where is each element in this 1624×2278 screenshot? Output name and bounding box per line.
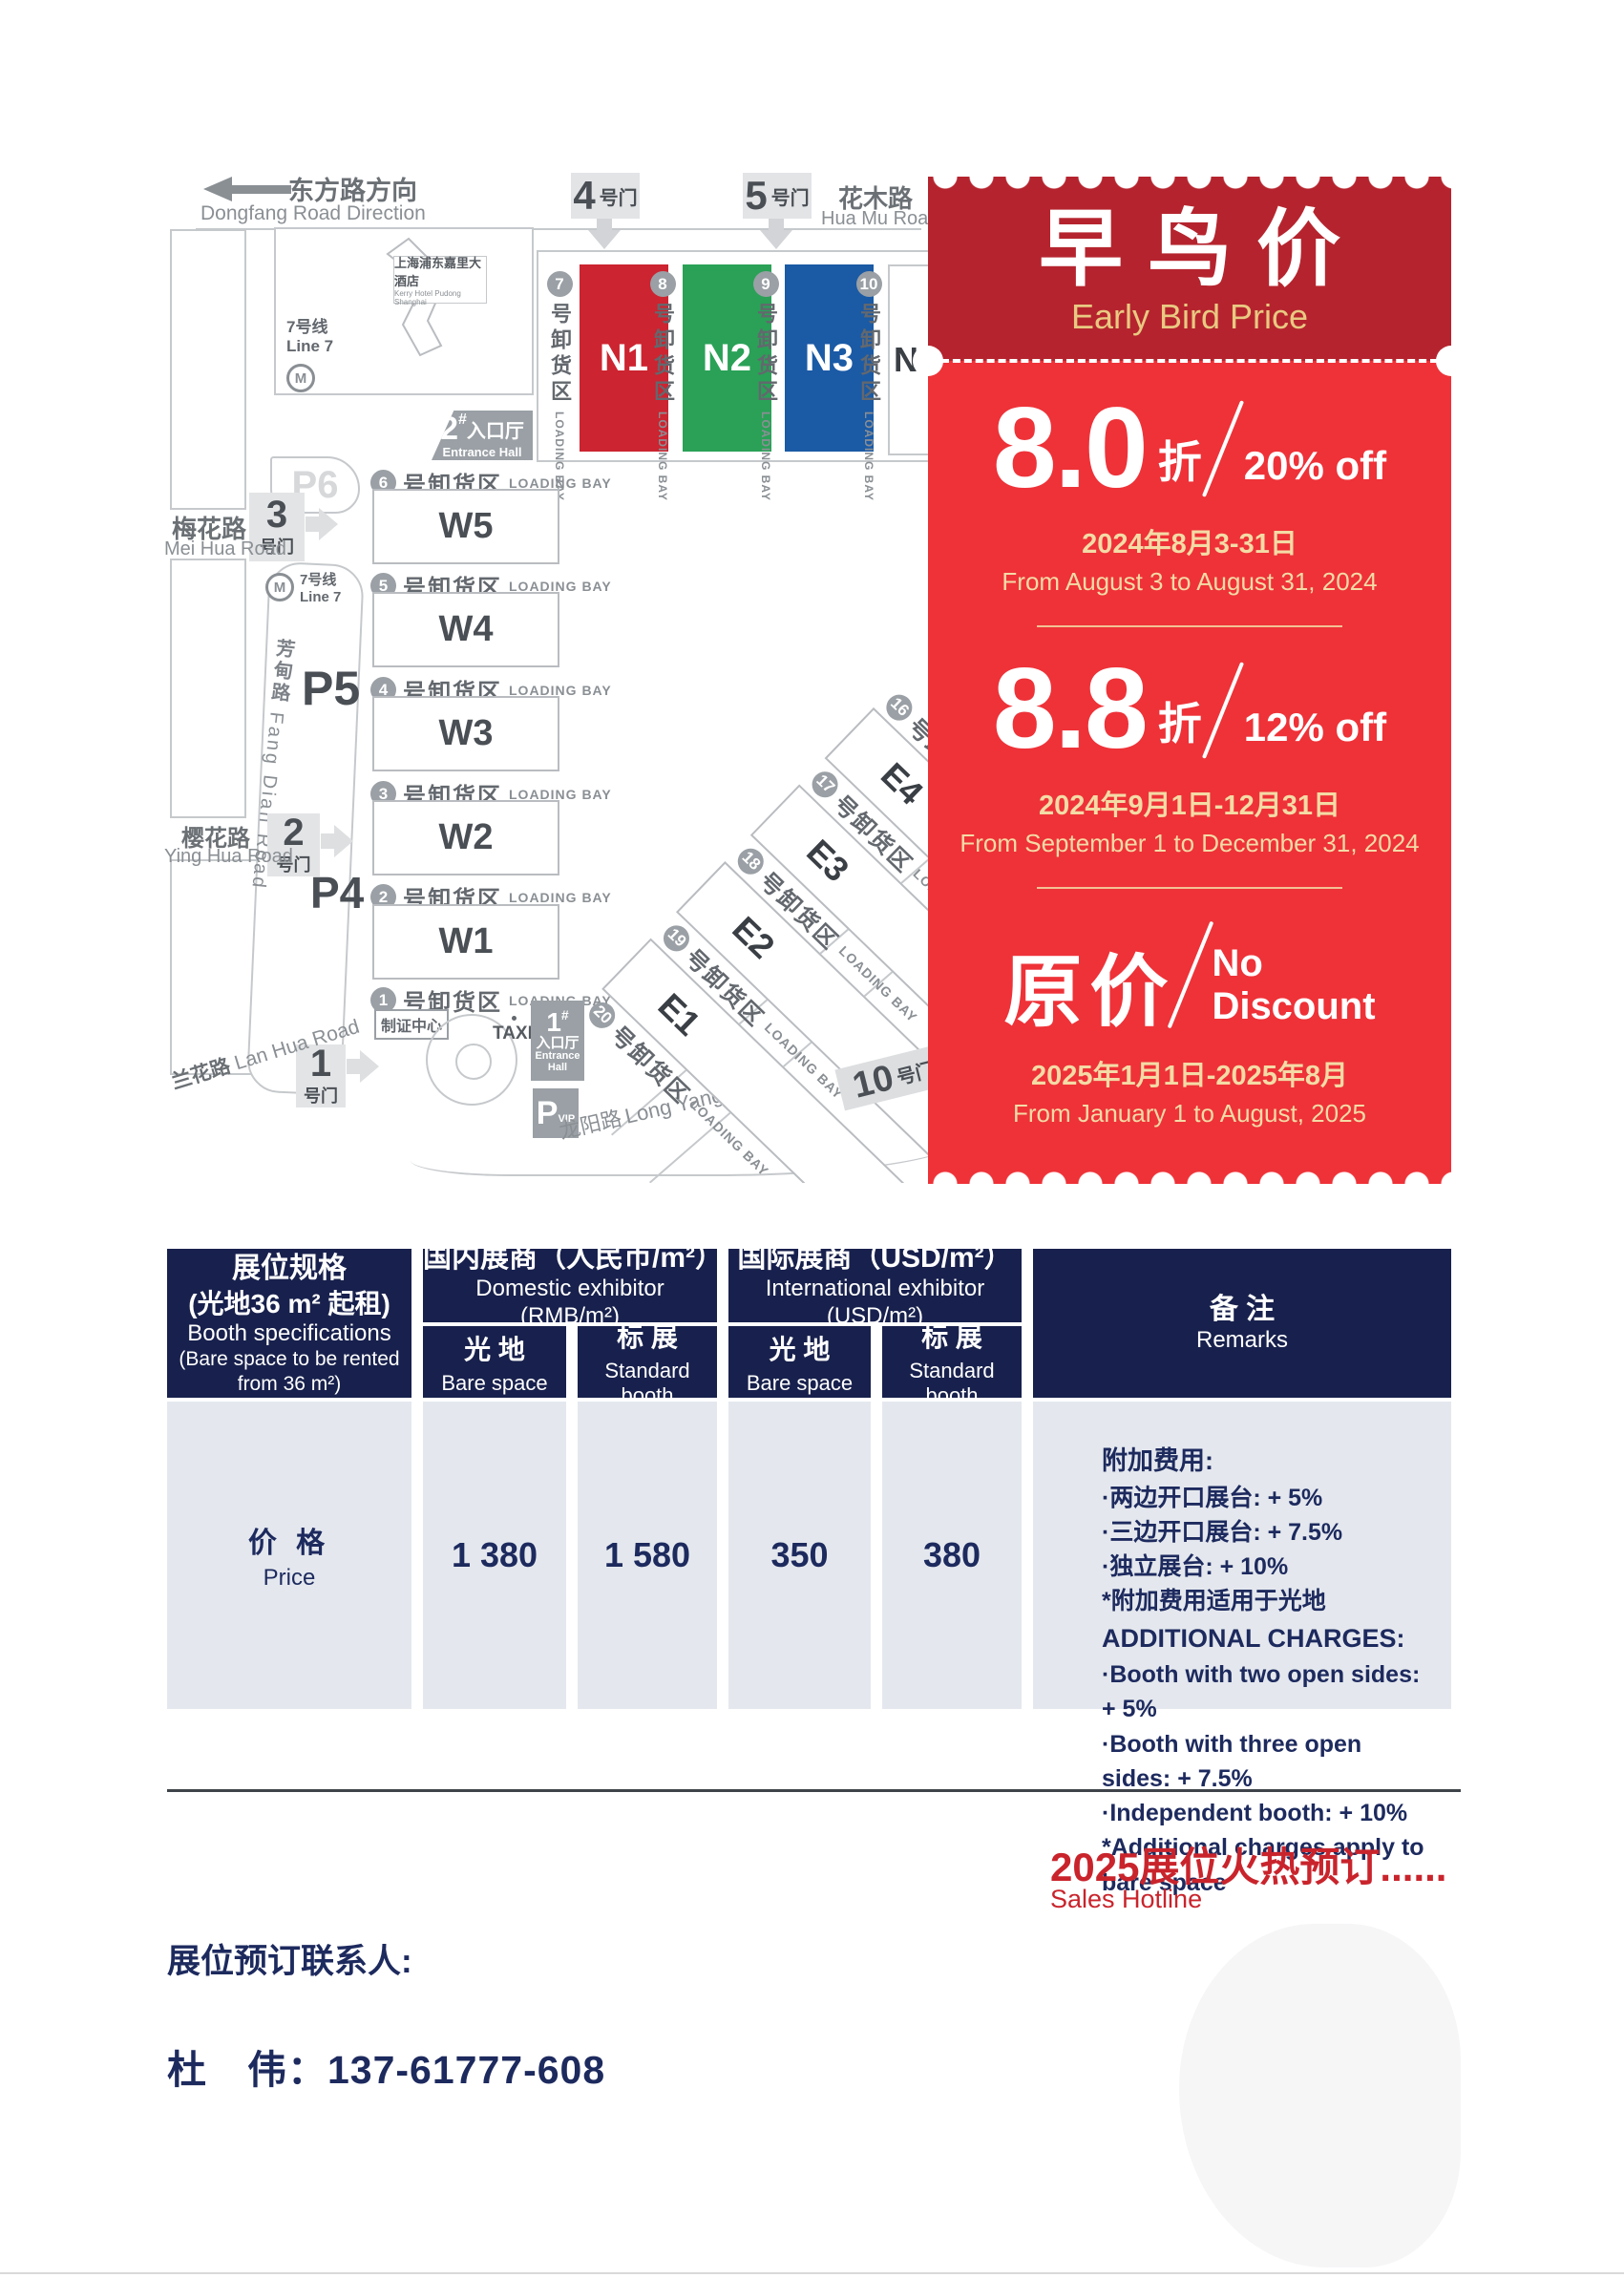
metro-cn: 7号线 — [300, 569, 341, 589]
std-en: Standard booth — [882, 1359, 1022, 1408]
tier-3-discount-line1: No — [1212, 942, 1375, 985]
gate-4-arrow-icon — [588, 219, 621, 249]
tier-1-unit: 折 — [1158, 428, 1202, 491]
intl-cn: 国际展商（USD/m²） — [737, 1240, 1012, 1276]
fangdian-road-cn: 芳甸路 — [267, 638, 295, 706]
huamu-road-label-en: Hua Mu Road — [821, 208, 939, 230]
entrance-1-hash: # — [561, 1008, 569, 1023]
contact-name-phone: 杜 伟：137-61777-608 — [167, 2037, 605, 2095]
loading-bay-label-en: LOADING BAY — [509, 890, 612, 905]
tier-3-value: 原价 — [1003, 954, 1175, 1032]
metro-cn: 7号线 — [286, 313, 333, 337]
hall-w4: W4 — [372, 592, 559, 667]
value-intl-bare: 350 — [770, 1535, 828, 1575]
metro-line7-gate3: M 7号线 Line 7 — [265, 569, 341, 605]
gate-5-suffix: 号门 — [771, 182, 810, 210]
sales-hotline-en: Sales Hotline — [1050, 1885, 1202, 1914]
loading-bay-label-cn: 号卸货区 — [544, 303, 575, 406]
arrow-bar — [232, 185, 291, 194]
gate-1-suffix: 号门 — [304, 1083, 338, 1107]
gate-4-suffix: 号门 — [600, 182, 638, 210]
loading-bay-8-number: 8 — [650, 271, 676, 297]
tier-3-date-cn: 2025年1月1日-2025年8月 — [928, 1053, 1451, 1093]
ticket-notch-left — [913, 346, 943, 376]
subheader-intl-bare: 光 地 Bare space — [728, 1326, 871, 1398]
charges-title-cn: 附加费用: — [1102, 1442, 1213, 1481]
value-domestic-bare: 1 380 — [452, 1535, 538, 1575]
loading-bay-9: 9 号卸货区 LOADING BAY — [750, 271, 781, 501]
domestic-cn: 国内展商（人民币/m²） — [423, 1240, 717, 1276]
gate-5-number: 5 — [745, 176, 767, 216]
entrance-1-number: 1 — [546, 1008, 561, 1036]
std-cn: 标 展 — [921, 1317, 982, 1355]
table-header-remarks: 备 注 Remarks — [1033, 1249, 1451, 1398]
gate-5-arrow-icon — [760, 219, 792, 249]
charge-item: ·Booth with three open sides: + 7.5% — [1102, 1727, 1434, 1797]
charge-item: ·两边开口展台: + 5% — [1102, 1481, 1322, 1515]
parking-p5: P5 — [302, 661, 360, 716]
remarks-en: Remarks — [1196, 1327, 1288, 1355]
value-domestic-standard: 1 580 — [604, 1535, 690, 1575]
hall-w1: W1 — [372, 904, 559, 980]
tier-separator — [1037, 625, 1342, 627]
price-table: 展位规格 (光地36 m² 起租) Booth specifications (… — [167, 1249, 1451, 1709]
price-intl-bare: 350 — [728, 1402, 871, 1709]
charges-title-en: ADDITIONAL CHARGES: — [1102, 1619, 1405, 1658]
meihua-road-label-en: Mei Hua Road — [164, 538, 286, 560]
subheader-domestic-bare: 光 地 Bare space — [423, 1326, 566, 1398]
tier-1-value: 8.0 — [993, 395, 1147, 500]
slash-divider — [1202, 662, 1244, 759]
tier-1-date-en: From August 3 to August 31, 2024 — [928, 567, 1451, 597]
hotel-name-en: Kerry Hotel Pudong Shanghai — [394, 289, 486, 306]
charge-item: ·独立展台: + 10% — [1102, 1550, 1288, 1584]
value-intl-standard: 380 — [923, 1535, 981, 1575]
spec-en3: from 36 m²) — [238, 1372, 342, 1396]
loading-bay-label-en: LOADING BAY — [862, 411, 875, 501]
spec-cn1: 展位规格 — [232, 1251, 347, 1287]
price-domestic-bare: 1 380 — [423, 1402, 566, 1709]
gate-3-arrow-icon — [306, 508, 338, 540]
ticket-perforation-line — [941, 359, 1438, 363]
tier-2-date-en: From September 1 to December 31, 2024 — [928, 829, 1451, 858]
gate-1-arrow-icon — [347, 1050, 379, 1083]
hotel-label-box: 上海浦东嘉里大酒店 Kerry Hotel Pudong Shanghai — [393, 256, 487, 304]
loading-bay-7-number: 7 — [547, 271, 573, 297]
loading-bay-10: 10 号卸货区 LOADING BAY — [854, 271, 884, 501]
loading-bay-label-cn: 号卸货区 — [854, 303, 884, 406]
table-header-domestic: 国内展商（人民币/m²） Domestic exhibitor (RMB/m²) — [423, 1249, 717, 1322]
price-domestic-standard: 1 580 — [578, 1402, 717, 1709]
footer-divider — [167, 1789, 1461, 1792]
gate-2-arrow-icon — [321, 825, 353, 857]
entrance-1-en2: Hall — [548, 1063, 567, 1074]
ticket-body: 8.0 折 20% off 2024年8月3-31日 From August 3… — [928, 361, 1451, 1184]
metro-en: Line 7 — [300, 589, 341, 605]
entrance-1-cn: 入口厅 — [536, 1036, 579, 1051]
ticket-title-en: Early Bird Price — [928, 297, 1451, 337]
ticket-notch-right — [1436, 346, 1466, 376]
ticket-header: 早鸟价 Early Bird Price — [928, 177, 1451, 361]
yinghua-road-label-en: Ying Hua Road — [164, 846, 293, 868]
taxi-label: TAXI — [493, 1023, 533, 1044]
loading-bay-label-en: LOADING BAY — [759, 411, 772, 501]
tier-3-discount-line2: Discount — [1212, 985, 1375, 1028]
slash-divider — [1202, 401, 1244, 498]
spec-cn2: (光地36 m² 起租) — [188, 1287, 390, 1320]
loading-bay-label-cn: 号卸货区 — [750, 303, 781, 406]
tier-3: 原价 No Discount 2025年1月1日-2025年8月 From Ja… — [928, 918, 1451, 1128]
page-bottom-edge — [0, 2272, 1624, 2274]
tier-1-discount: 20% off — [1244, 443, 1386, 489]
loading-bay-9-number: 9 — [753, 271, 779, 297]
gate-10-number: 10 — [850, 1060, 897, 1105]
metro-en: Line 7 — [286, 337, 333, 356]
bare-cn: 光 地 — [770, 1329, 831, 1367]
entrance-1-en1: Entrance — [535, 1051, 580, 1063]
entrance-2-number: 2 — [440, 412, 458, 445]
std-cn: 标 展 — [617, 1317, 678, 1355]
tier-2-date-cn: 2024年9月1日-12月31日 — [928, 783, 1451, 823]
hall-w5: W5 — [372, 489, 559, 564]
spec-en1: Booth specifications — [187, 1320, 390, 1348]
metro-line7-hotel: 7号线 Line 7 M — [286, 313, 333, 392]
entrance-2-cn: 入口厅 — [467, 422, 524, 441]
entrance-2-en: Entrance Hall — [442, 445, 521, 459]
std-en: Standard booth — [578, 1359, 717, 1408]
early-bird-ticket: 早鸟价 Early Bird Price 8.0 折 20% off 2024年… — [928, 177, 1451, 1184]
charge-item: ·Independent booth: + 10% — [1102, 1796, 1407, 1830]
ticket-scallop-bottom — [928, 1170, 1451, 1184]
loading-bay-label-en: LOADING BAY — [656, 411, 669, 501]
price-intl-standard: 380 — [882, 1402, 1022, 1709]
tier-2: 8.8 折 12% off 2024年9月1日-12月31日 From Sept… — [928, 656, 1451, 857]
tier-2-value: 8.8 — [993, 656, 1147, 761]
gate-3-number: 3 — [266, 496, 287, 534]
tier-3-discount: No Discount — [1212, 942, 1375, 1028]
left-block-top — [170, 229, 246, 510]
loading-bay-label-cn: 号卸货区 — [647, 303, 678, 406]
background-watermark — [1179, 1924, 1461, 2267]
metro-icon: M — [265, 573, 294, 601]
subheader-domestic-standard: 标 展 Standard booth — [578, 1326, 717, 1398]
ticket-scallop-top — [928, 177, 1451, 191]
bare-cn: 光 地 — [464, 1329, 525, 1367]
charge-item: ·Booth with two open sides: + 5% — [1102, 1657, 1434, 1727]
hall-w3: W3 — [372, 696, 559, 771]
price-label-en: Price — [264, 1565, 316, 1592]
tier-1-date-cn: 2024年8月3-31日 — [928, 521, 1451, 561]
charge-item: ·三边开口展台: + 7.5% — [1102, 1515, 1342, 1550]
taxi-dot — [512, 1016, 517, 1021]
price-row-label: 价 格 Price — [167, 1402, 411, 1709]
gate-4-number: 4 — [573, 176, 595, 216]
tier-2-discount: 12% off — [1244, 705, 1386, 750]
table-header-spec: 展位规格 (光地36 m² 起租) Booth specifications (… — [167, 1249, 411, 1398]
entrance-2-hash: # — [458, 412, 467, 428]
remarks-cell: 附加费用: ·两边开口展台: + 5% ·三边开口展台: + 7.5% ·独立展… — [1033, 1402, 1451, 1709]
dongfang-road-label-en: Dongfang Road Direction — [200, 202, 426, 225]
spec-en2: (Bare space to be rented — [179, 1347, 399, 1371]
west-direction-arrow-icon — [203, 177, 291, 201]
tier-2-unit: 折 — [1158, 689, 1202, 752]
tier-1: 8.0 折 20% off 2024年8月3-31日 From August 3… — [928, 395, 1451, 597]
loading-bay-10-number: 10 — [856, 271, 882, 297]
parking-p4: P4 — [310, 867, 364, 918]
bare-en: Bare space — [747, 1371, 853, 1396]
arrow-head — [203, 177, 232, 201]
left-block-mid — [170, 559, 246, 818]
table-header-international: 国际展商（USD/m²） International exhibitor (US… — [728, 1249, 1022, 1322]
bare-en: Bare space — [441, 1371, 547, 1396]
price-label-cn: 价 格 — [248, 1519, 330, 1561]
roundabout-inner — [455, 1044, 492, 1080]
hotel-name-cn: 上海浦东嘉里大酒店 — [394, 253, 486, 289]
entrance-hall-1: 1 # 入口厅 Entrance Hall — [531, 1001, 584, 1081]
charge-item: *附加费用适用于光地 — [1102, 1584, 1326, 1618]
gate-4: 4 号门 — [571, 173, 640, 219]
ticket-title-cn: 早鸟价 — [928, 205, 1451, 293]
hall-w2: W2 — [372, 800, 559, 875]
contact-label: 展位预订联系人: — [167, 1934, 412, 1983]
flyer-page: 东方路方向 Dongfang Road Direction 4 号门 5 号门 … — [0, 0, 1624, 2278]
metro-icon: M — [286, 364, 315, 392]
gate-5: 5 号门 — [743, 173, 812, 219]
loading-bay-8: 8 号卸货区 LOADING BAY — [647, 271, 678, 501]
entrance-hall-2: 2 # 入口厅 Entrance Hall — [432, 411, 533, 460]
remarks-cn: 备 注 — [1210, 1292, 1275, 1328]
tier-separator — [1037, 887, 1342, 889]
tier-3-date-en: From January 1 to August, 2025 — [928, 1099, 1451, 1128]
subheader-intl-standard: 标 展 Standard booth — [882, 1326, 1022, 1398]
